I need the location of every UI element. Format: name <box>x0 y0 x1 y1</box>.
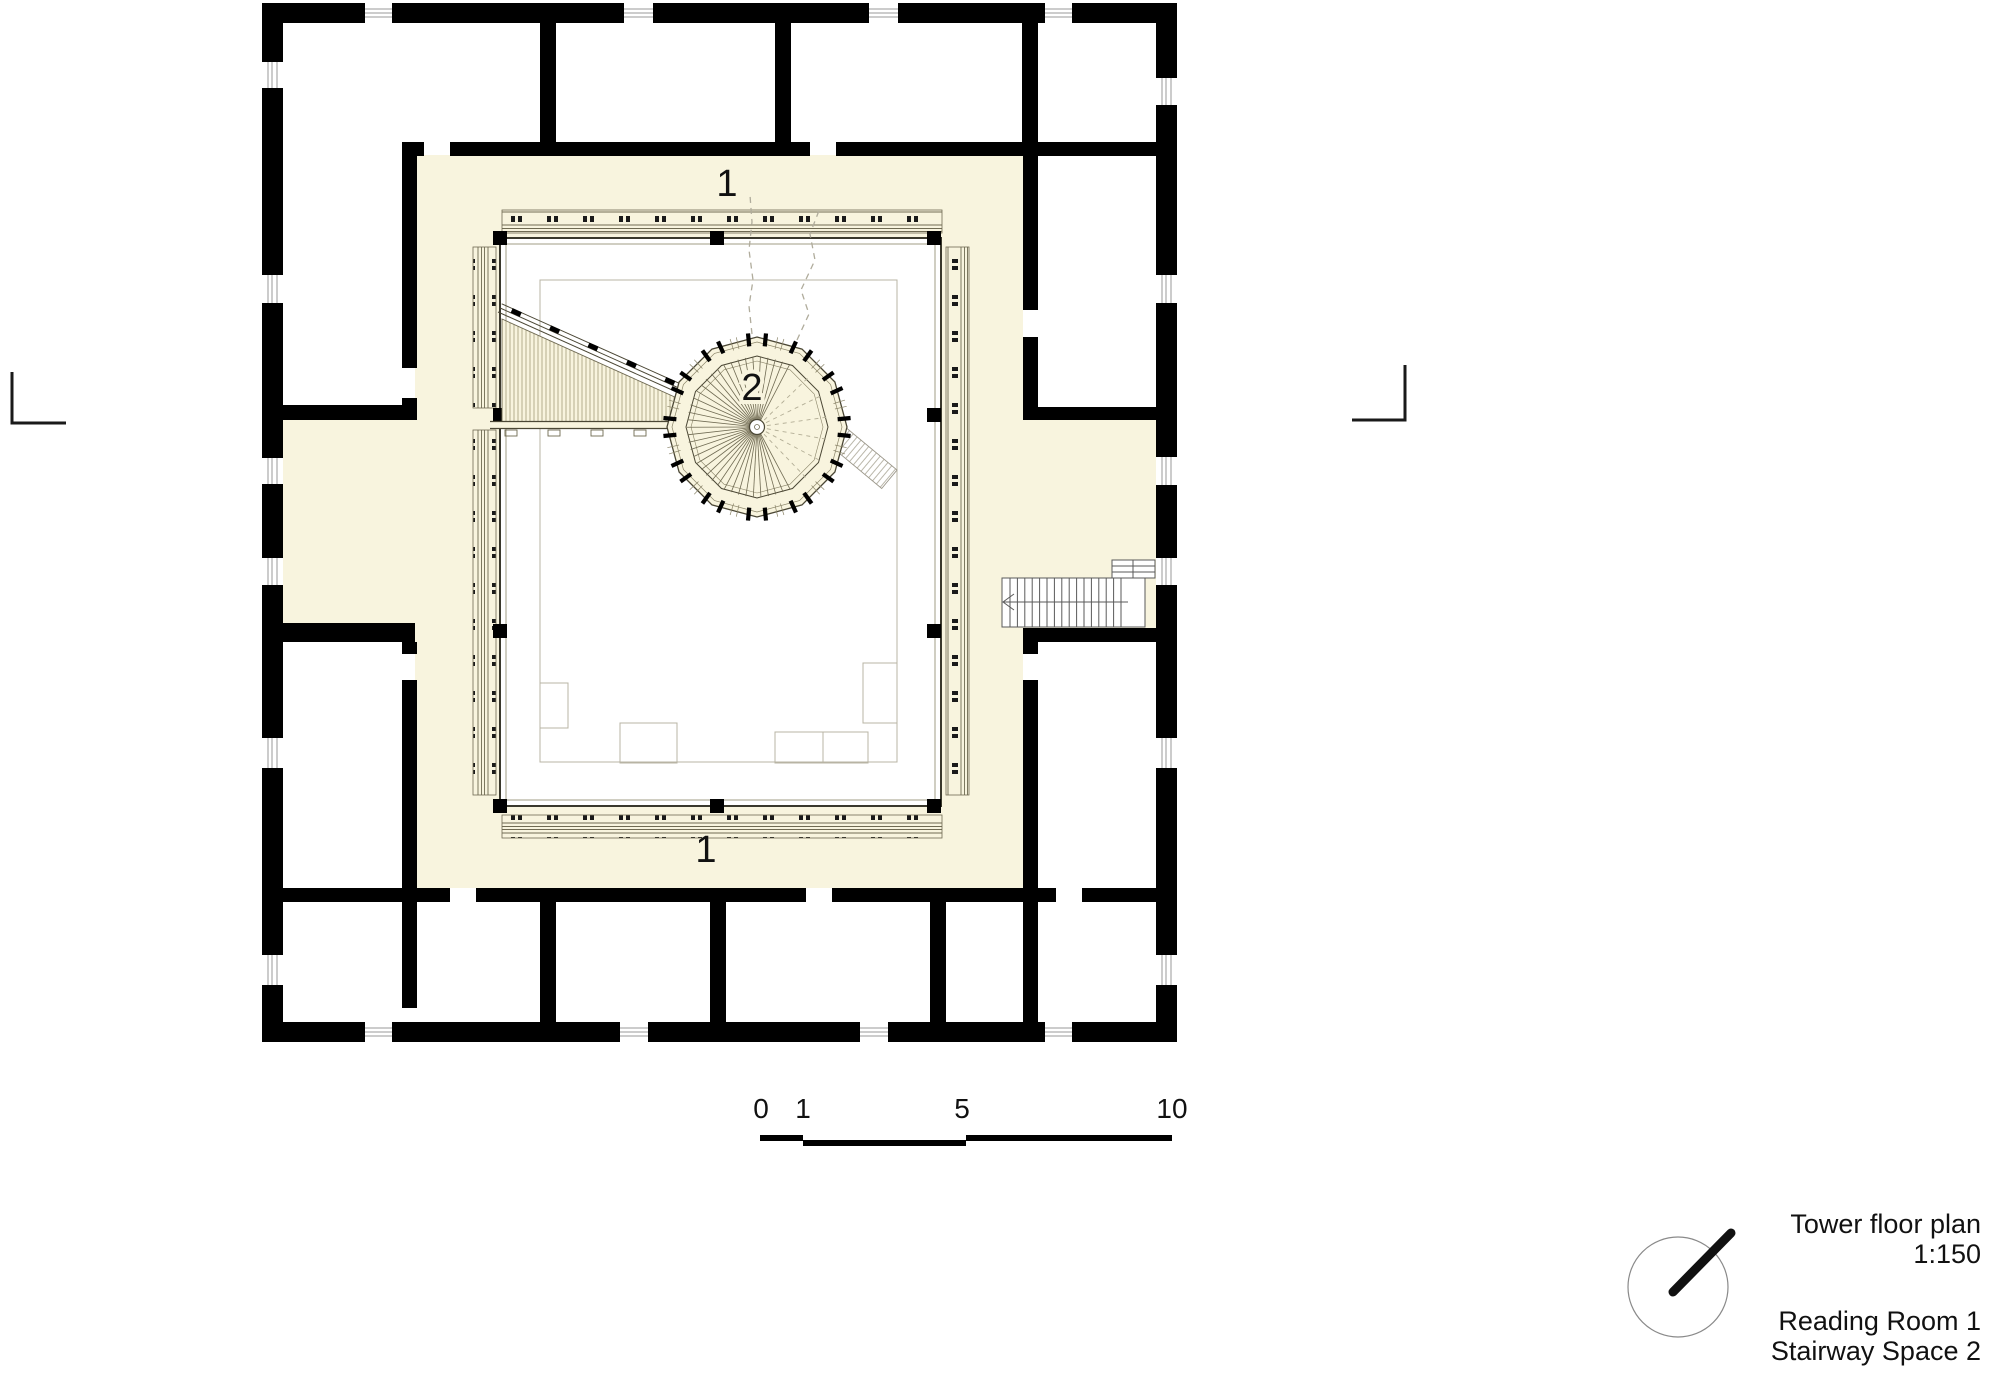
plan-scale: 1:150 <box>1913 1239 1981 1269</box>
tower-floor-plan-drawing: 1 1 2 0 1 5 10 Tower floor plan 1:150 Re… <box>0 0 2000 1373</box>
legend-reading-room: Reading Room 1 <box>1778 1306 1981 1336</box>
scale-tick-0: 0 <box>753 1093 769 1124</box>
zone-label-1-top: 1 <box>716 163 737 205</box>
scale-segment <box>760 1135 803 1141</box>
zone-label-1-bottom: 1 <box>695 829 716 871</box>
zone-label-2-stairway: 2 <box>741 367 762 409</box>
scale-tick-5: 5 <box>954 1093 970 1124</box>
scale-tick-10: 10 <box>1156 1093 1187 1124</box>
scale-segment <box>803 1140 966 1146</box>
legend-stairway-space: Stairway Space 2 <box>1771 1336 1981 1366</box>
scale-segment <box>966 1135 1172 1141</box>
scale-tick-1: 1 <box>795 1093 811 1124</box>
plan-title: Tower floor plan <box>1790 1209 1981 1239</box>
